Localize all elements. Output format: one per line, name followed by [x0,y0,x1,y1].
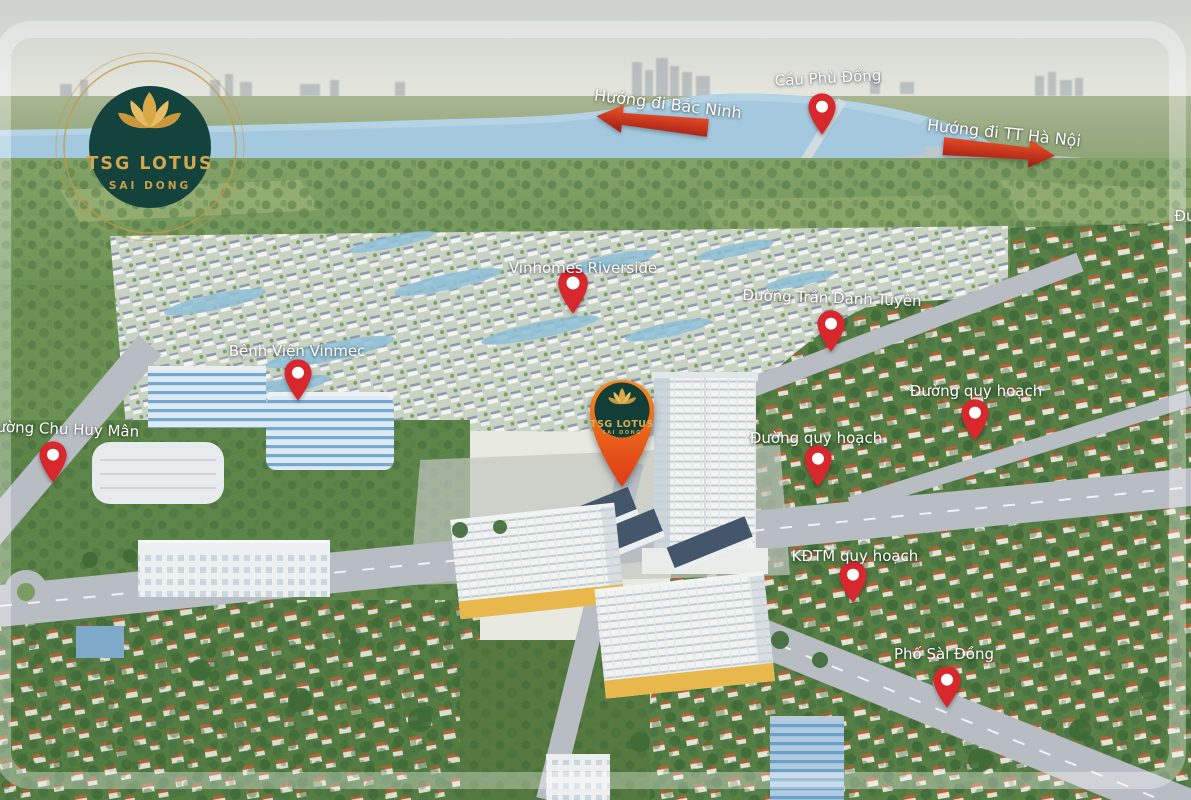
marker-label-kdtm-quy-hoach: KĐTM quy hoạch [792,547,919,565]
marker-label-partial-east: Đường [1174,207,1191,225]
location-pin-icon[interactable] [283,358,314,406]
marker-label-pho-sai-dong: Phố Sài Đồng [894,645,994,663]
location-pin-icon[interactable] [803,444,834,492]
location-pin-icon[interactable] [960,398,991,446]
location-pin-icon[interactable] [838,560,869,608]
marker-label-vinhomes-riverside: Vinhomes Riverside [509,259,657,277]
logo-graphic [45,42,255,252]
logo-subtitle: SAI DONG [45,180,255,192]
marker-label-duong-quy-hoach-2: Đường quy hoạch [910,382,1042,400]
logo-title: TSG LOTUS [45,154,255,174]
location-pin-icon[interactable] [807,92,838,140]
location-pin-icon[interactable] [816,309,847,357]
aerial-location-map: TSG LOTUS SAI DONG Hướng đi Bắc Ninh Hướ… [0,0,1191,800]
project-pin-tsg-lotus[interactable]: TSG LOTUS SAI DONG [586,377,658,489]
project-pin-title: TSG LOTUS [586,419,658,430]
location-pin-icon[interactable] [932,665,963,713]
tsg-lotus-logo: TSG LOTUS SAI DONG [45,42,255,252]
marker-label-benh-vien-vinmec: Bệnh Viện Vinmec [229,342,366,360]
project-pin-subtitle: SAI DONG [586,430,658,436]
location-pin-icon[interactable] [38,440,69,488]
marker-label-duong-quy-hoach-1: Đường quy hoạch [750,429,882,447]
